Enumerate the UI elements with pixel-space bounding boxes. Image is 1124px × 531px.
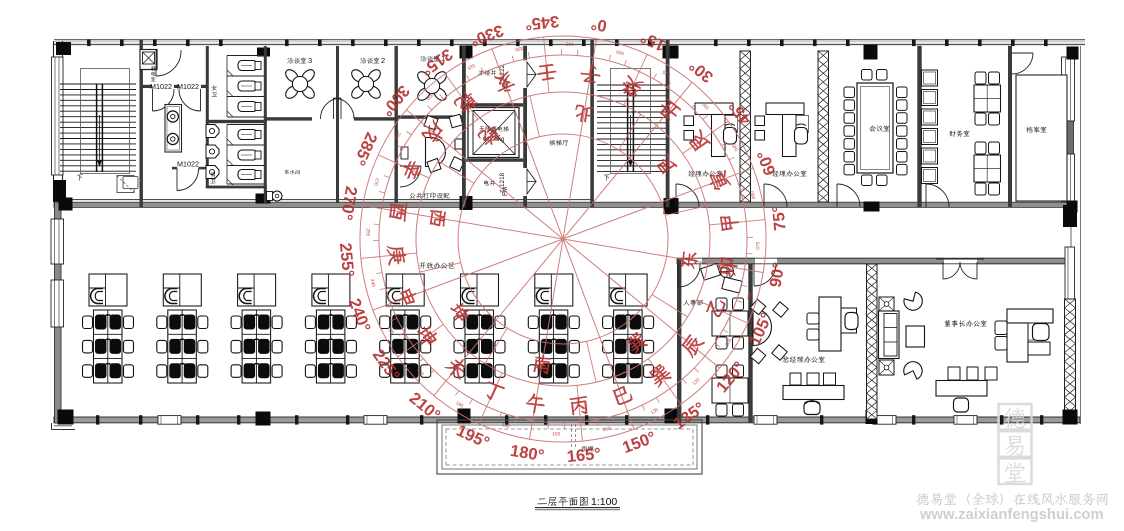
svg-text:www.zaixianfengshui.com: www.zaixianfengshui.com — [919, 507, 1104, 523]
svg-text:3: 3 — [308, 56, 312, 65]
svg-text:255°: 255° — [336, 242, 357, 278]
svg-text:165°: 165° — [566, 445, 602, 466]
svg-text:165: 165 — [552, 431, 561, 437]
svg-text:345: 345 — [565, 40, 574, 46]
svg-text:345°: 345° — [524, 12, 560, 33]
svg-text:M1022: M1022 — [150, 82, 172, 91]
svg-text:075: 075 — [755, 241, 761, 250]
svg-text:M1022: M1022 — [177, 160, 199, 169]
svg-text:1:100: 1:100 — [591, 496, 617, 508]
svg-text:1218: 1218 — [499, 172, 506, 187]
svg-text:75°: 75° — [769, 205, 789, 232]
svg-text:2: 2 — [381, 56, 385, 65]
svg-text:0°: 0° — [590, 14, 609, 34]
svg-text:255: 255 — [364, 228, 370, 237]
svg-text:M1022: M1022 — [177, 82, 199, 91]
